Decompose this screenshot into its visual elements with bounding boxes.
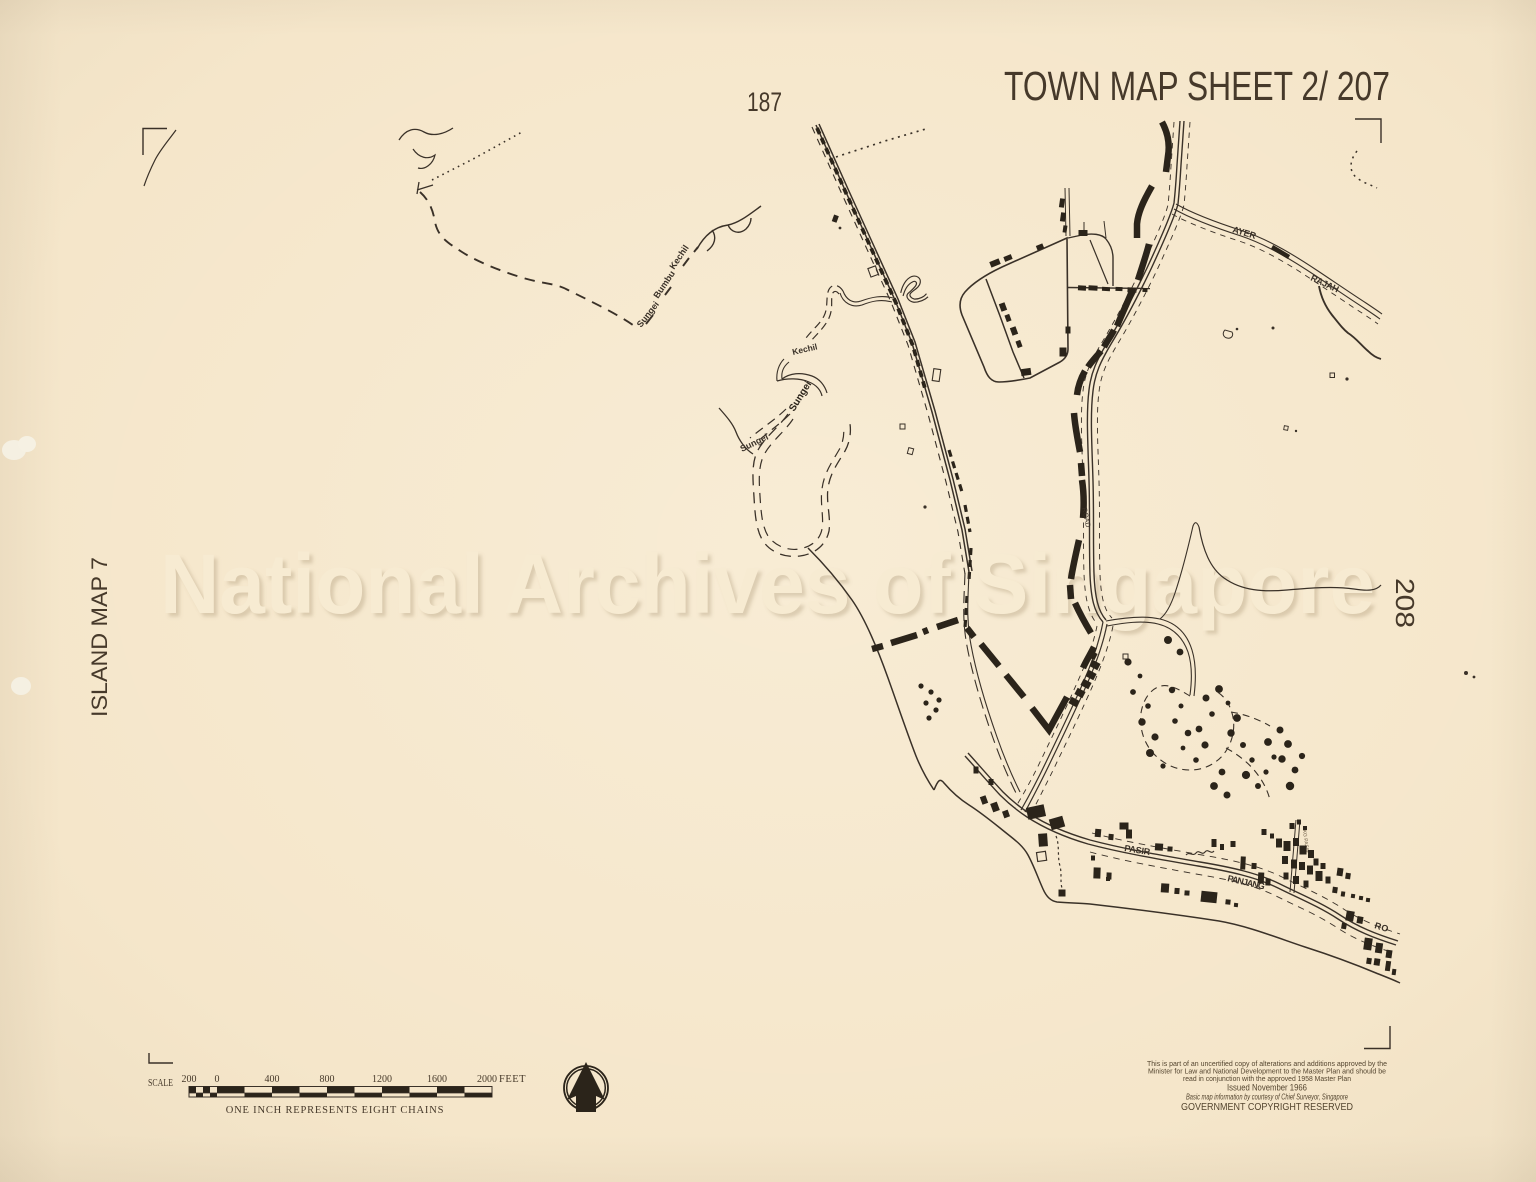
svg-text:FEET: FEET bbox=[499, 1074, 526, 1085]
svg-text:400: 400 bbox=[265, 1074, 280, 1085]
svg-text:Kechil: Kechil bbox=[667, 243, 690, 271]
svg-text:Sungei: Sungei bbox=[738, 432, 769, 454]
svg-text:TOWN MAP SHEET 2/ 207: TOWN MAP SHEET 2/ 207 bbox=[1004, 63, 1390, 109]
svg-text:Sungei: Sungei bbox=[635, 299, 661, 329]
svg-text:1200: 1200 bbox=[372, 1074, 392, 1085]
svg-text:800: 800 bbox=[320, 1074, 335, 1085]
svg-text:RO: RO bbox=[1373, 920, 1389, 934]
svg-text:PASIR: PASIR bbox=[1124, 843, 1152, 857]
svg-text:ISLAND MAP 7: ISLAND MAP 7 bbox=[87, 557, 112, 717]
svg-text:1600: 1600 bbox=[427, 1074, 447, 1085]
svg-text:AYER: AYER bbox=[1231, 224, 1257, 241]
svg-text:187: 187 bbox=[747, 87, 782, 117]
svg-text:Sungei: Sungei bbox=[787, 379, 814, 413]
svg-text:Basic map information by court: Basic map information by courtesy of Chi… bbox=[1186, 1092, 1348, 1102]
svg-text:2000: 2000 bbox=[477, 1074, 497, 1085]
svg-text:ONE INCH REPRESENTS EIGHT CHAI: ONE INCH REPRESENTS EIGHT CHAINS bbox=[226, 1105, 445, 1116]
svg-text:0: 0 bbox=[215, 1074, 220, 1085]
svg-text:Bumbu: Bumbu bbox=[651, 269, 677, 300]
svg-text:GOVERNMENT COPYRIGHT RESERVED: GOVERNMENT COPYRIGHT RESERVED bbox=[1181, 1102, 1353, 1113]
svg-text:200: 200 bbox=[182, 1074, 197, 1085]
svg-text:National Archives of Singapore: National Archives of Singapore bbox=[160, 537, 1375, 631]
svg-text:208: 208 bbox=[1390, 578, 1420, 628]
svg-text:Kechil: Kechil bbox=[791, 341, 818, 356]
svg-text:SCALE: SCALE bbox=[148, 1077, 173, 1089]
